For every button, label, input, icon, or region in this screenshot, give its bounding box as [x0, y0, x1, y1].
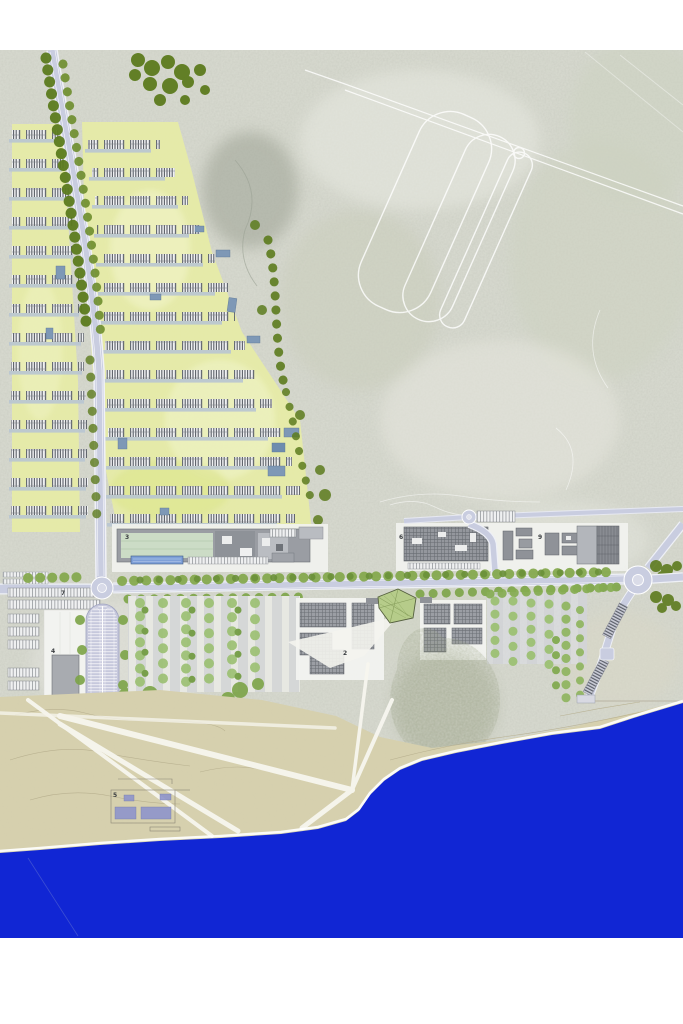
- swimming-pool: [131, 556, 183, 564]
- label-parking-7: 7: [61, 590, 65, 597]
- parking-strip-north: [477, 511, 515, 522]
- masterplan-page: 3 6 9: [0, 0, 683, 1024]
- west-roundabout: [91, 577, 113, 599]
- green-roof: [121, 533, 213, 558]
- bottom-margin: [0, 938, 683, 1024]
- central-parcels: [128, 596, 300, 706]
- top-margin: [0, 0, 683, 50]
- label-building-2: 2: [343, 650, 347, 657]
- rooftop-panels: [270, 529, 296, 537]
- parking-row: [188, 557, 268, 564]
- campus-east-slab: [577, 526, 619, 564]
- label-building-5: 5: [113, 792, 117, 799]
- label-building-6: 6: [399, 534, 403, 541]
- label-building-4: 4: [51, 648, 55, 655]
- label-building-9: 9: [538, 534, 542, 541]
- building-3-complex: 3: [112, 524, 328, 572]
- masterplan-canvas: 3 6 9: [0, 0, 683, 1024]
- campus-north: 6 9: [396, 523, 628, 571]
- label-building-3: 3: [125, 534, 129, 541]
- building-4: [52, 655, 79, 698]
